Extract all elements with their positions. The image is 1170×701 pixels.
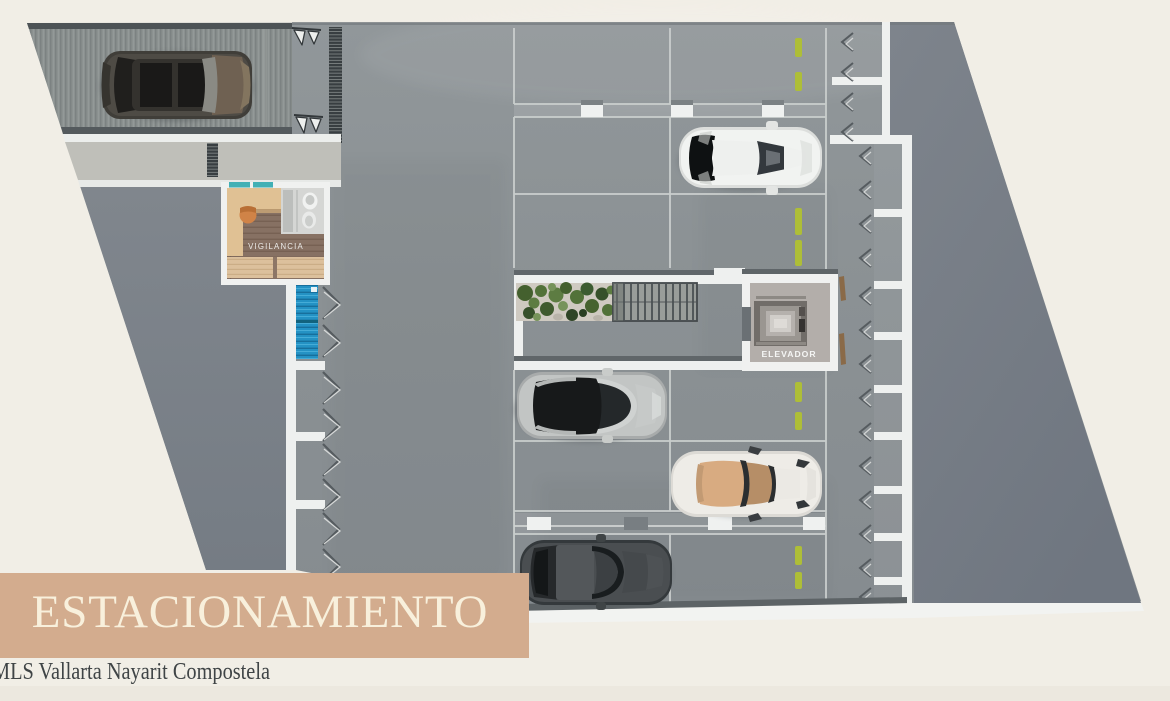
svg-text:ELEVADOR: ELEVADOR — [761, 349, 816, 359]
svg-text:ESTACIONAMIENTO: ESTACIONAMIENTO — [32, 586, 488, 638]
svg-text:VIGILANCIA: VIGILANCIA — [248, 242, 304, 251]
svg-text:MLS Vallarta Nayarit Compostel: MLS Vallarta Nayarit Compostela — [0, 659, 270, 685]
